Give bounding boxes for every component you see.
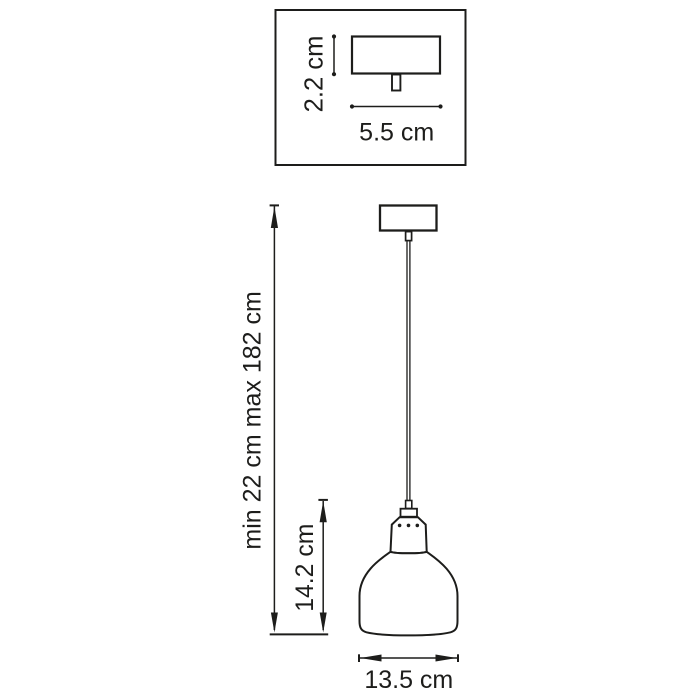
svg-text:2.2 cm: 2.2 cm — [301, 36, 329, 113]
svg-text:min 22 cm max 182 cm: min 22 cm max 182 cm — [239, 291, 267, 549]
svg-text:14.2 cm: 14.2 cm — [292, 524, 319, 612]
svg-text:13.5 cm: 13.5 cm — [364, 666, 453, 694]
svg-text:5.5 cm: 5.5 cm — [359, 119, 434, 147]
